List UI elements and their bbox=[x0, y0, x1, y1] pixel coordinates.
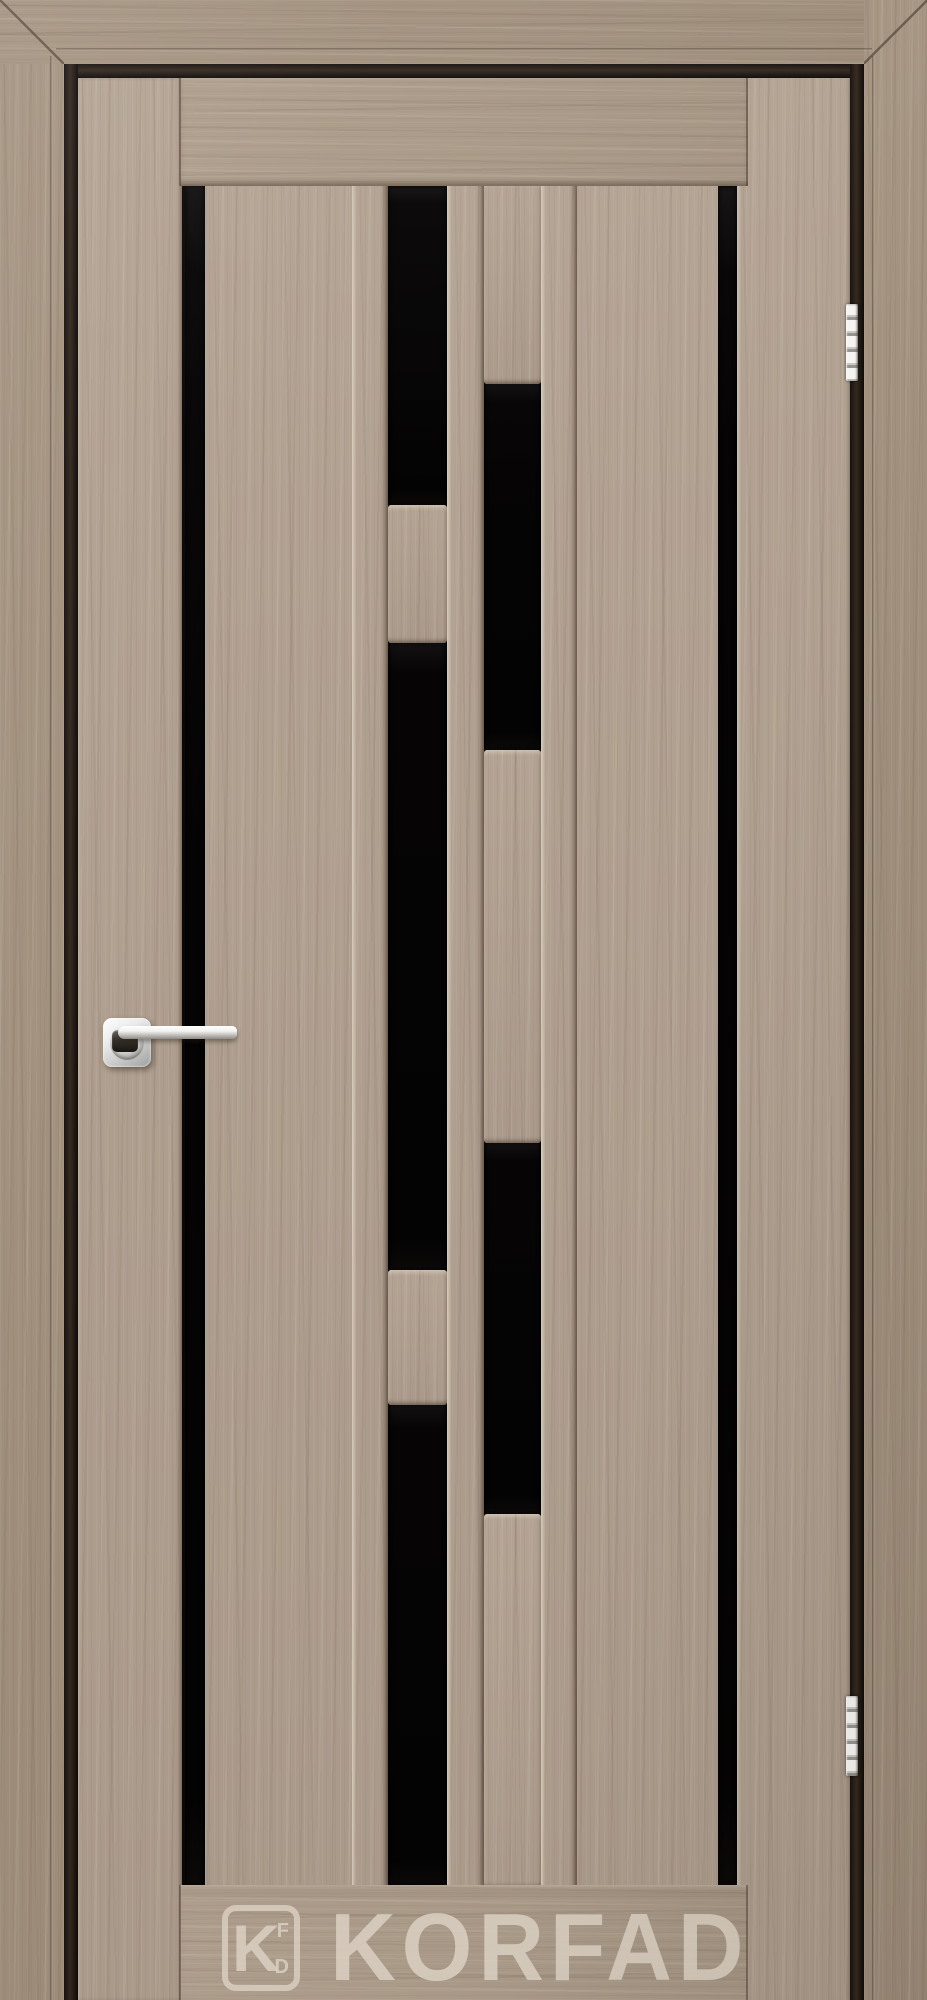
wood-infill-block bbox=[484, 182, 541, 384]
casing-miter-top-left bbox=[0, 0, 64, 64]
wood-infill-block bbox=[388, 1270, 447, 1405]
door-hinge-bottom bbox=[846, 1696, 858, 1776]
door-product-photo: K F D KORFAD bbox=[0, 0, 927, 2000]
door-mullion bbox=[352, 182, 388, 1892]
reveal-gap-left bbox=[64, 64, 78, 2000]
logo-letter-d: D bbox=[275, 1957, 289, 1977]
door-mullion bbox=[541, 182, 577, 1892]
glass-segment bbox=[388, 188, 447, 505]
door-panel-right bbox=[577, 182, 718, 1892]
logo-letter-f: F bbox=[277, 1921, 289, 1941]
rail-stile-joint bbox=[179, 1885, 181, 2000]
casing-header bbox=[0, 0, 927, 64]
glass-strip-right bbox=[718, 188, 737, 1883]
reveal-gap-top bbox=[64, 64, 864, 78]
casing-left bbox=[0, 0, 64, 2000]
rail-stile-joint bbox=[746, 78, 748, 186]
rail-stile-joint bbox=[179, 78, 181, 186]
door-mullion bbox=[447, 182, 484, 1892]
door-stile-right bbox=[737, 78, 850, 2000]
door-handle-lever bbox=[118, 1026, 237, 1039]
glass-segment bbox=[388, 643, 447, 1270]
casing-left-bead bbox=[50, 56, 53, 2000]
casing-header-bead bbox=[56, 48, 872, 51]
door-hinge-top bbox=[846, 304, 858, 381]
korfad-logo-icon: K F D bbox=[222, 1905, 300, 1991]
wood-infill-block bbox=[484, 1514, 541, 1888]
wood-infill-block bbox=[484, 750, 541, 1143]
glass-segment bbox=[484, 1143, 541, 1514]
brand-watermark-text: KORFAD bbox=[330, 1903, 749, 1993]
glass-segment bbox=[484, 384, 541, 750]
casing-miter-top-right bbox=[864, 0, 927, 64]
door-rail-top bbox=[180, 78, 748, 186]
brand-watermark: K F D KORFAD bbox=[222, 1902, 822, 1994]
glass-segment bbox=[388, 1405, 447, 1885]
wood-infill-block bbox=[388, 505, 447, 643]
logo-letter-k: K bbox=[232, 1915, 280, 1981]
door-leaf bbox=[78, 78, 850, 2000]
casing-right-bead bbox=[872, 56, 875, 2000]
